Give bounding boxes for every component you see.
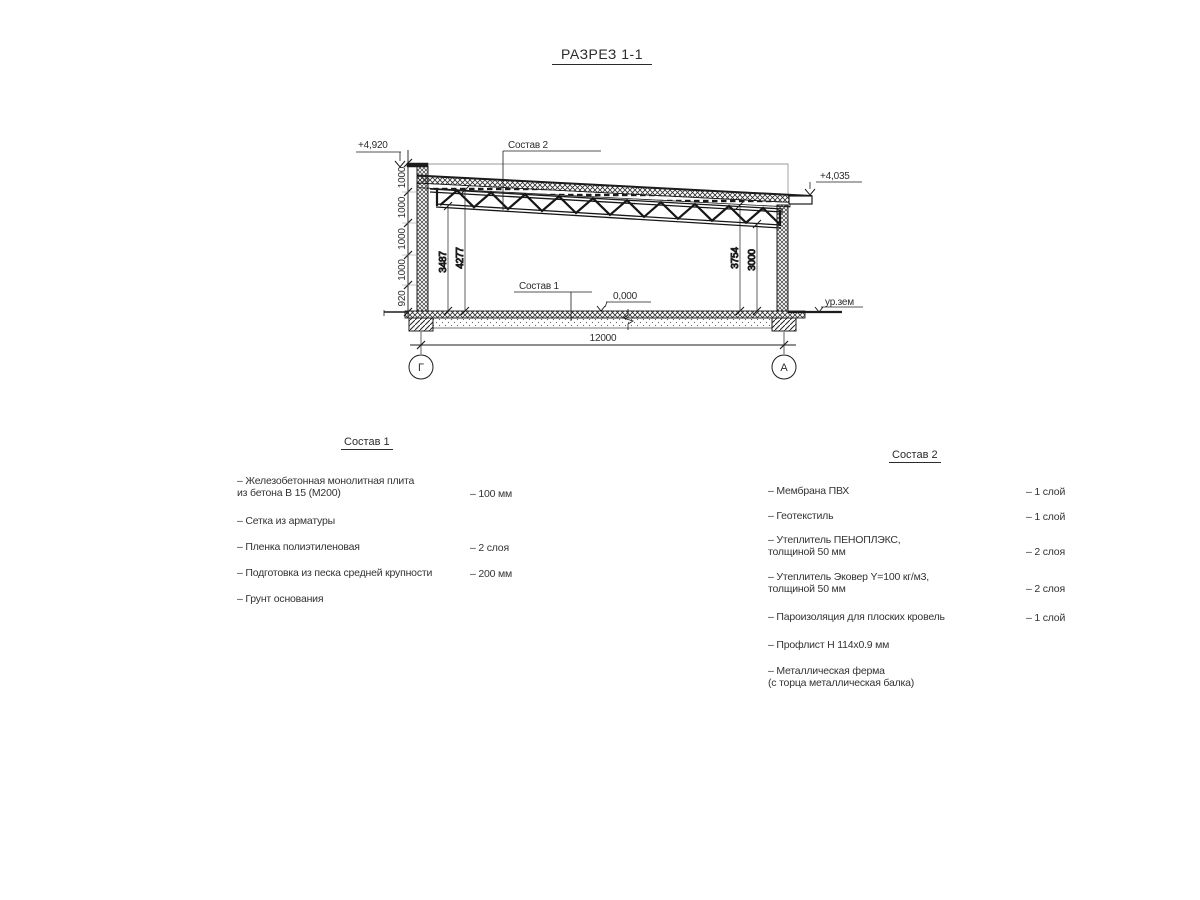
elevation-parapet: +4,920 [356,140,405,167]
chain-dim-2: 1000 [397,228,408,250]
elev-parapet-label: +4,920 [358,140,388,151]
dim-right-low: 3000 [747,249,758,271]
list1-heading: Состав 1 [341,436,393,450]
elev-zero-label: 0,000 [613,291,638,302]
elevation-zero: 0,000 [597,291,651,311]
composition-list-1: – Железобетонная монолитная плита из бет… [237,476,537,616]
chain-dim-3: 1000 [397,259,408,281]
composition-list-2: – Мембрана ПВХ – 1 слой – Геотекстиль – … [768,483,1088,703]
eave-end-plate [789,196,812,204]
dim-right-high: 3754 [730,247,741,269]
left-dimension-chain: 1000 1000 1000 1000 920 [397,150,417,318]
floor-slab [384,309,842,331]
right-footing [772,318,796,331]
dim-left-high: 4277 [455,247,466,269]
axis-bubble-left: Г [409,355,433,379]
callout-roof-label: Состав 2 [508,140,549,151]
dim-left-low: 3487 [438,251,449,273]
span-dim-label: 12000 [590,333,617,344]
chain-dim-0: 1000 [397,166,408,188]
axis-left-label: Г [418,362,424,374]
right-wall [777,205,788,311]
ground-level-label: ур.зем [825,297,854,308]
ground-level-mark: ур.зем [815,297,863,312]
section-drawing: 1000 1000 1000 1000 920 3487 4277 3754 3… [0,0,1200,420]
callout-floor-label: Состав 1 [519,281,560,292]
elev-eave-label: +4,035 [820,171,850,182]
chain-dim-1: 1000 [397,196,408,218]
chain-dim-4: 920 [397,290,408,307]
drawing-sheet: РАЗРЕЗ 1-1 [0,0,1200,900]
span-dimension: 12000 [410,332,796,354]
axis-bubble-right: А [772,355,796,379]
left-footing [409,318,433,331]
list2-heading: Состав 2 [889,449,941,463]
elevation-eave: +4,035 [805,171,862,195]
axis-right-label: А [780,362,788,374]
